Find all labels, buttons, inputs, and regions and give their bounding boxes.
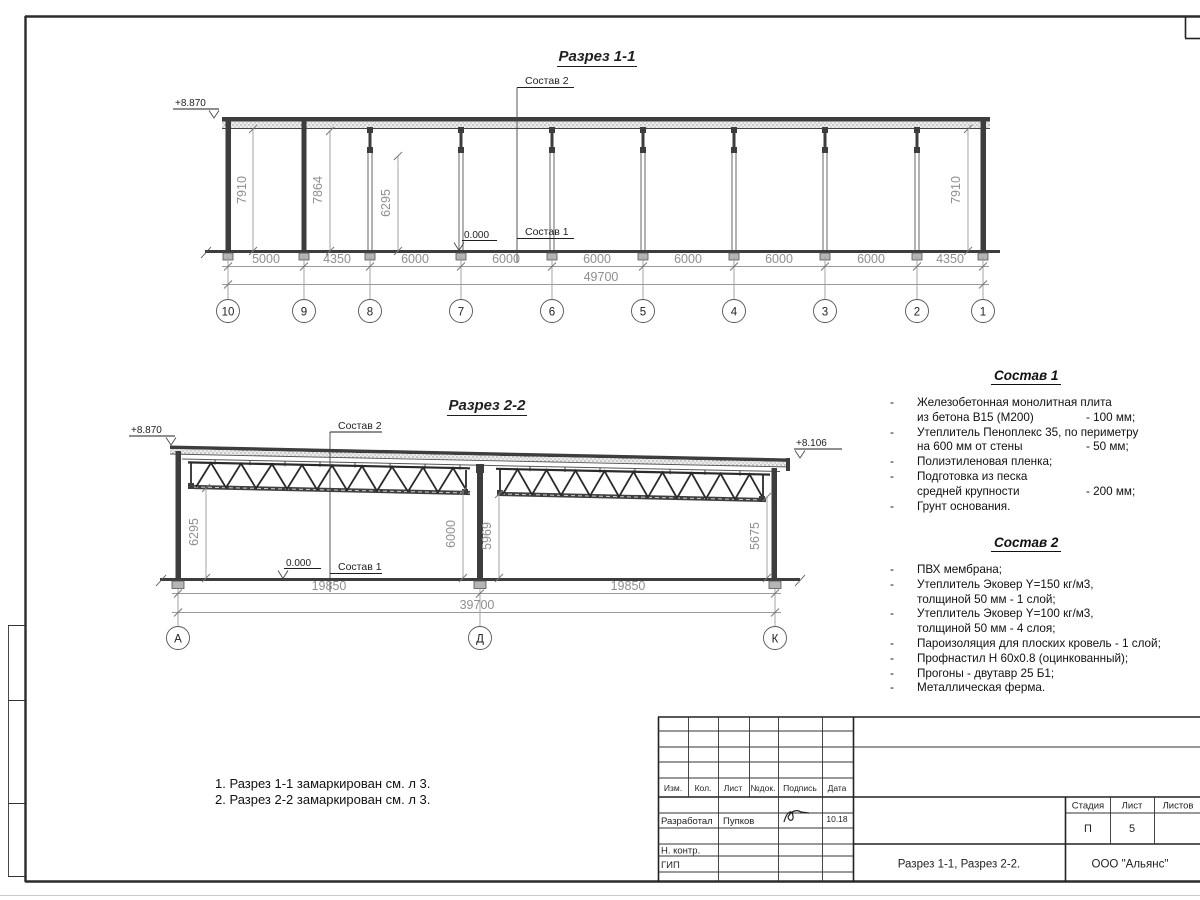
s11-axis-6: 6 bbox=[549, 307, 555, 319]
s11-bay-dim: 5000 bbox=[252, 252, 280, 266]
bullet-dash: - bbox=[890, 396, 894, 411]
s11-bay-dim: 4350 bbox=[936, 252, 964, 266]
list-item: толщиной 50 мм - 4 слоя; bbox=[888, 622, 1200, 637]
item-text: из бетона В15 (М200) bbox=[917, 411, 1034, 424]
s11-axis-3: 3 bbox=[822, 307, 828, 319]
sostav2-items: -ПВХ мембрана; -Утеплитель Эковер Y=150 … bbox=[888, 563, 1200, 696]
tb-sheet-label: Лист bbox=[1122, 801, 1143, 812]
bullet-dash: - bbox=[890, 667, 894, 682]
item-text: средней крупности bbox=[917, 485, 1019, 498]
s22-axis-k: К bbox=[772, 634, 779, 646]
s22-dim-5969: 5969 bbox=[480, 522, 494, 550]
item-text: толщиной 50 мм - 1 слой; bbox=[917, 593, 1056, 606]
list-item: -Подготовка из песка bbox=[888, 470, 1200, 485]
section-1-1-title: Разрез 1-1 bbox=[558, 48, 635, 65]
s11-axis-1: 1 bbox=[980, 307, 986, 319]
tb-sheets-label: Листов bbox=[1163, 801, 1194, 812]
s22-axis-d: Д bbox=[476, 634, 484, 646]
list-item: -Грунт основания. bbox=[888, 500, 1200, 515]
bullet-dash: - bbox=[890, 578, 894, 593]
list-item: на 600 мм от стены- 50 мм; bbox=[888, 440, 1200, 455]
s11-level-top: +8.870 bbox=[173, 98, 219, 118]
s11-level-zero-value: 0.000 bbox=[464, 230, 489, 241]
tb-header-izm: Изм. bbox=[664, 783, 682, 793]
s11-vertical-dims: 7910 7864 6295 7910 bbox=[235, 125, 972, 255]
item-text: Грунт основания. bbox=[917, 500, 1010, 513]
s22-axis-a: А bbox=[174, 634, 182, 646]
s11-level-top-value: +8.870 bbox=[175, 98, 206, 109]
tb-ncontr-label: Н. контр. bbox=[661, 846, 700, 857]
list-item: -Железобетонная монолитная плита bbox=[888, 396, 1200, 411]
s11-axis-bubbles: 10 9 8 7 6 5 4 3 2 1 bbox=[217, 300, 995, 323]
s11-axis-4: 4 bbox=[731, 307, 738, 319]
s11-bay-dim: 6000 bbox=[765, 252, 793, 266]
list-item: -Утеплитель Пеноплекс 35, по периметру bbox=[888, 426, 1200, 441]
s22-dim-5675: 5675 bbox=[748, 522, 762, 550]
tb-gip-label: ГИП bbox=[661, 860, 680, 871]
item-value: - 200 мм; bbox=[1086, 485, 1135, 500]
drawing-sheet: Разрез 1-1 bbox=[0, 0, 1200, 900]
item-text: толщиной 50 мм - 4 слоя; bbox=[917, 622, 1055, 635]
s22-level-left-value: +8.870 bbox=[131, 425, 162, 436]
tb-sheet-value: 5 bbox=[1129, 823, 1135, 835]
item-text: Подготовка из песка bbox=[917, 470, 1027, 483]
item-value: - 100 мм; bbox=[1086, 411, 1135, 426]
list-item: -ПВХ мембрана; bbox=[888, 563, 1200, 578]
list-item: из бетона В15 (М200)- 100 мм; bbox=[888, 411, 1200, 426]
tb-developed-label: Разработал bbox=[661, 816, 713, 827]
tb-header-kol: Кол. bbox=[695, 783, 712, 793]
bullet-dash: - bbox=[890, 652, 894, 667]
bullet-dash: - bbox=[890, 681, 894, 696]
s22-callouts: Состав 2 Состав 1 bbox=[330, 420, 382, 592]
bullet-dash: - bbox=[890, 500, 894, 515]
s11-callout-roof: Состав 2 bbox=[525, 75, 569, 87]
list-item: -Металлическая ферма. bbox=[888, 681, 1200, 696]
s11-level-zero: 0.000 bbox=[454, 230, 497, 251]
s22-dim-6295: 6295 bbox=[187, 518, 201, 546]
item-text: Профнастил Н 60х0.8 (оцинкованный); bbox=[917, 652, 1128, 665]
s11-bay-dim: 6000 bbox=[857, 252, 885, 266]
tb-developed-name: Пупков bbox=[723, 816, 754, 827]
revision-headers: Изм. Кол. Лист №док. Подпись Дата bbox=[664, 783, 847, 793]
s22-callout-roof: Состав 2 bbox=[338, 420, 382, 432]
s22-level-right-value: +8.106 bbox=[796, 438, 827, 449]
section-2-2-title: Разрез 2-2 bbox=[448, 397, 526, 414]
format-box bbox=[1185, 17, 1200, 39]
s11-axis-2: 2 bbox=[914, 307, 920, 319]
list-item: -Утеплитель Эковер Y=150 кг/м3, bbox=[888, 578, 1200, 593]
item-text: ПВХ мембрана; bbox=[917, 563, 1002, 576]
s11-dim-7864: 7864 bbox=[311, 176, 325, 204]
bullet-dash: - bbox=[890, 637, 894, 652]
bullet-dash: - bbox=[890, 563, 894, 578]
bullet-dash: - bbox=[890, 455, 894, 470]
tb-header-list: Лист bbox=[724, 783, 743, 793]
sostav1-block: Состав 1 -Железобетонная монолитная плит… bbox=[888, 367, 1200, 514]
list-item: -Прогоны - двутавр 25 Б1; bbox=[888, 667, 1200, 682]
s11-bay-dim: 6000 bbox=[401, 252, 429, 266]
list-item: -Пароизоляция для плоских кровель - 1 сл… bbox=[888, 637, 1200, 652]
tb-header-data: Дата bbox=[828, 783, 847, 793]
item-text: Прогоны - двутавр 25 Б1; bbox=[917, 667, 1054, 680]
s11-total-dim: 49700 bbox=[584, 270, 619, 284]
s22-total-dim: 39700 bbox=[460, 598, 495, 612]
s22-footings bbox=[172, 581, 781, 589]
section-2-2: Разрез 2-2 bbox=[129, 397, 842, 650]
note-line-1: 1. Разрез 1-1 замаркирован см. л 3. bbox=[215, 776, 430, 792]
item-text: Металлическая ферма. bbox=[917, 681, 1045, 694]
tb-stage-value: П bbox=[1084, 823, 1092, 835]
s22-level-right: +8.106 bbox=[794, 438, 842, 458]
s11-axis-9: 9 bbox=[301, 307, 307, 319]
item-text: Утеплитель Эковер Y=100 кг/м3, bbox=[917, 607, 1094, 620]
s11-dim-7910-right: 7910 bbox=[949, 176, 963, 204]
tb-header-podpis: Подпись bbox=[783, 783, 817, 793]
s11-axis-7: 7 bbox=[458, 307, 464, 319]
item-text: Полиэтиленовая пленка; bbox=[917, 455, 1052, 468]
notes-block: 1. Разрез 1-1 замаркирован см. л 3. 2. Р… bbox=[215, 776, 430, 807]
s11-dim-7910-left: 7910 bbox=[235, 176, 249, 204]
s11-dim-6295: 6295 bbox=[379, 189, 393, 217]
list-item: -Утеплитель Эковер Y=100 кг/м3, bbox=[888, 607, 1200, 622]
bullet-dash: - bbox=[890, 607, 894, 622]
s11-interior-columns bbox=[367, 127, 920, 251]
tb-developed-date: 10.18 bbox=[826, 814, 848, 824]
bullet-dash: - bbox=[890, 470, 894, 485]
signature-scribble bbox=[784, 811, 809, 822]
section-1-1: Разрез 1-1 bbox=[173, 48, 1000, 323]
sostav2-block: Состав 2 -ПВХ мембрана; -Утеплитель Эков… bbox=[888, 534, 1200, 696]
bullet-dash: - bbox=[890, 426, 894, 441]
s22-level-zero-value: 0.000 bbox=[286, 558, 311, 569]
s11-bay-dim: 6000 bbox=[674, 252, 702, 266]
s11-callout-floor: Состав 1 bbox=[525, 226, 569, 238]
list-item: средней крупности- 200 мм; bbox=[888, 485, 1200, 500]
s11-axis-10: 10 bbox=[222, 307, 235, 319]
sostav1-items: -Железобетонная монолитная плита из бето… bbox=[888, 396, 1200, 514]
s11-bay-dim: 6000 bbox=[492, 252, 520, 266]
s22-bay-dim: 19850 bbox=[611, 579, 646, 593]
s11-bay-dim: 6000 bbox=[583, 252, 611, 266]
title-block: Изм. Кол. Лист №док. Подпись Дата Разраб… bbox=[658, 717, 1200, 882]
s22-callout-floor: Состав 1 bbox=[338, 561, 382, 573]
s22-truss-2 bbox=[496, 469, 770, 502]
s22-truss-1 bbox=[188, 462, 470, 495]
item-text: Железобетонная монолитная плита bbox=[917, 396, 1112, 409]
tb-doc-title: Разрез 1-1, Разрез 2-2. bbox=[898, 859, 1021, 871]
list-item: -Полиэтиленовая пленка; bbox=[888, 455, 1200, 470]
s11-axis-5: 5 bbox=[640, 307, 646, 319]
s22-bay-dim: 19850 bbox=[312, 579, 347, 593]
s11-bottom-dims: 5000 4350 6000 6000 6000 6000 6000 6000 … bbox=[222, 252, 989, 299]
item-text: Утеплитель Пеноплекс 35, по периметру bbox=[917, 426, 1138, 439]
s22-dim-6000: 6000 bbox=[444, 520, 458, 548]
tb-stage-label: Стадия bbox=[1072, 801, 1104, 812]
s11-axis-8: 8 bbox=[367, 307, 373, 319]
note-line-2: 2. Разрез 2-2 замаркирован см. л 3. bbox=[215, 792, 430, 808]
list-item: -Профнастил Н 60х0.8 (оцинкованный); bbox=[888, 652, 1200, 667]
tb-company: ООО "Альянс" bbox=[1092, 859, 1169, 871]
s22-level-zero: 0.000 bbox=[278, 558, 321, 579]
sostav2-title: Состав 2 bbox=[991, 535, 1061, 552]
list-item: толщиной 50 мм - 1 слой; bbox=[888, 593, 1200, 608]
item-text: Утеплитель Эковер Y=150 кг/м3, bbox=[917, 578, 1094, 591]
tb-header-ndok: №док. bbox=[751, 783, 776, 793]
s22-axis-bubbles: А Д К bbox=[167, 627, 787, 650]
item-value: - 50 мм; bbox=[1086, 440, 1129, 455]
sostav1-title: Состав 1 bbox=[991, 368, 1061, 385]
item-text: на 600 мм от стены bbox=[917, 440, 1023, 453]
left-stamp-strip bbox=[8, 625, 25, 877]
s22-structure bbox=[156, 446, 805, 589]
item-text: Пароизоляция для плоских кровель - 1 сло… bbox=[917, 637, 1161, 650]
s22-level-left: +8.870 bbox=[129, 425, 176, 445]
s11-callouts: Состав 2 Состав 1 bbox=[517, 75, 574, 263]
s11-bay-dim: 4350 bbox=[323, 252, 351, 266]
